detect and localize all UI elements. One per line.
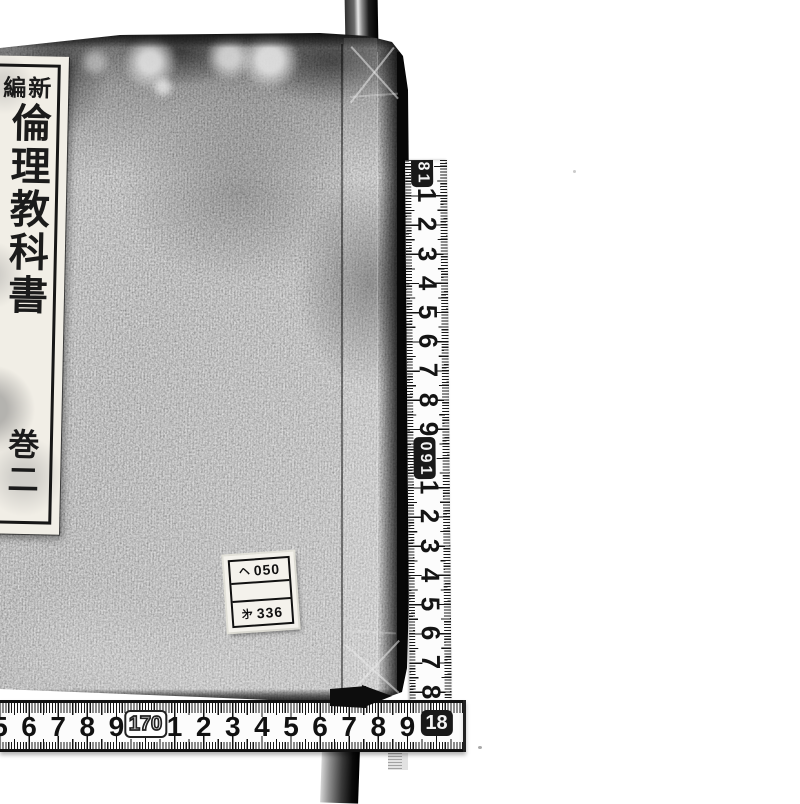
hanging-rod-bottom — [320, 750, 360, 803]
call-number-row: 㐧 336 — [233, 599, 292, 626]
call-number-prefix: ヘ — [238, 563, 250, 580]
vertical-tape-number: 7 — [407, 360, 449, 381]
vertical-tape-number: 8 — [407, 389, 449, 410]
spine-margin — [344, 38, 377, 696]
horizontal-tape-number: 6 — [312, 713, 328, 741]
vertical-tape-number: 3 — [406, 243, 448, 264]
vertical-tape-number: 6 — [409, 622, 451, 643]
call-number-value: 050 — [253, 561, 280, 579]
vertical-tape-number: 5 — [409, 593, 451, 614]
horizontal-tape-number: 170 — [124, 710, 167, 738]
title-text: 倫理教科書 — [4, 102, 48, 318]
horizontal-tape-number: 9 — [109, 713, 125, 741]
book-cover: 新編 倫理教科書 巻二 ヘ 050 㐧 336 — [0, 32, 410, 704]
call-number-value: 336 — [256, 603, 283, 621]
title-label: 新編 倫理教科書 巻二 — [0, 55, 69, 535]
horizontal-tape-number: 4 — [254, 713, 270, 741]
horizontal-tape-number: 8 — [371, 713, 387, 741]
vertical-tape-number: 091 — [413, 437, 435, 479]
title-series-text: 新編 — [0, 68, 69, 104]
tape-end-arrow-icon — [330, 684, 394, 710]
vertical-tape-number: 2 — [405, 214, 447, 235]
horizontal-tape-number: 9 — [400, 713, 416, 741]
horizontal-tape-number: 7 — [341, 713, 357, 741]
call-number-table: ヘ 050 㐧 336 — [228, 556, 295, 628]
dust-speck — [478, 746, 482, 749]
horizontal-tape-number: 2 — [196, 713, 212, 741]
vertical-tape-number: 1 — [408, 476, 450, 497]
vertical-tape-number: 4 — [406, 272, 448, 293]
horizontal-tape-number: 5 — [283, 713, 299, 741]
vertical-tape-number: 2 — [408, 506, 450, 527]
photo-canvas: 新編 倫理教科書 巻二 ヘ 050 㐧 336 — [0, 0, 800, 800]
vertical-tape-number: 3 — [408, 535, 450, 556]
vertical-tape-number: 7 — [409, 652, 451, 673]
tape-stub-below-ruler — [388, 753, 408, 770]
horizontal-measuring-tape: 5678917012345678918 — [0, 700, 466, 752]
cover-fold-crease — [341, 44, 343, 692]
vertical-tape-number: 081 — [411, 160, 433, 187]
spine-highlight — [377, 52, 378, 690]
horizontal-tape-number: 5 — [0, 713, 8, 741]
horizontal-tape-number: 6 — [21, 713, 37, 741]
volume-text: 巻二 — [4, 428, 36, 499]
horizontal-tape-number: 1 — [167, 713, 183, 741]
call-number-sticker: ヘ 050 㐧 336 — [223, 552, 298, 633]
horizontal-tape-number: 3 — [225, 713, 241, 741]
call-number-prefix: 㐧 — [241, 605, 253, 622]
vertical-tape-number: 1 — [405, 185, 447, 206]
vertical-tape-number: 6 — [406, 330, 448, 351]
horizontal-tape-number: 7 — [50, 713, 66, 741]
horizontal-tape-number: 18 — [420, 710, 452, 736]
vertical-tape-number: 4 — [409, 564, 451, 585]
vertical-tape-number: 5 — [406, 301, 448, 322]
horizontal-tape-number: 8 — [80, 713, 96, 741]
dust-speck — [573, 170, 576, 173]
vertical-measuring-tape: 08112345678909112345678 — [405, 160, 452, 716]
